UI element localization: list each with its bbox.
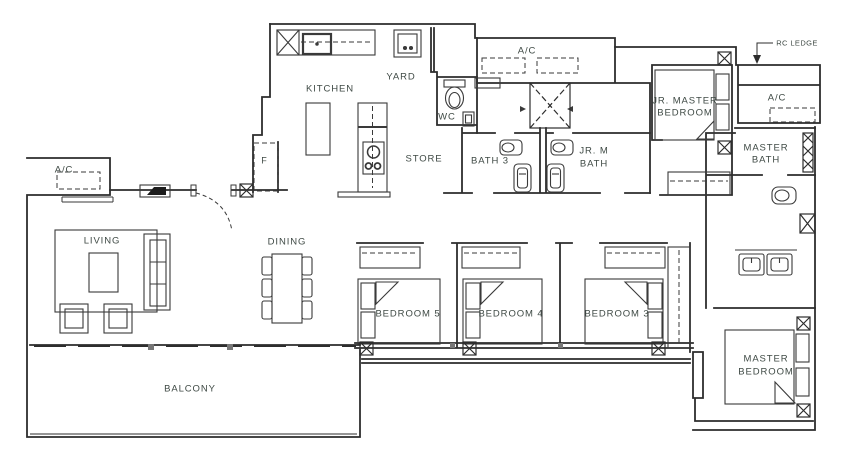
room-label-bedroom5: BEDROOM 5 (375, 309, 440, 320)
beds (358, 70, 809, 404)
room-label-yard: YARD (386, 72, 415, 83)
master-toilet (772, 187, 796, 204)
fridge (254, 143, 278, 191)
room-label-balcony: BALCONY (164, 384, 216, 395)
floor-plan: KITCHEN YARD WC STORE BATH 3 JR. M BATH … (0, 0, 841, 475)
room-label-store: STORE (405, 154, 442, 165)
entrance-door (140, 185, 236, 231)
wardrobe-bedroom5 (360, 247, 420, 268)
room-label-jr-master-line2: BEDROOM (657, 108, 712, 119)
room-label-wc: WC (438, 112, 456, 123)
bath3-fixtures (500, 106, 531, 192)
shaft-main (530, 83, 570, 128)
dashed-elements (57, 42, 815, 345)
ac-label-top: A/C (518, 46, 537, 57)
room-label-jr-m-bath-line2: BATH (580, 159, 608, 170)
kitchen-fittings (277, 30, 500, 197)
wardrobe-rods (362, 181, 728, 345)
floorplan-drawing (0, 0, 841, 475)
rc-ledge-label: RC LEDGE (776, 38, 818, 49)
room-label-living: LIVING (84, 236, 121, 247)
room-label-master-bedroom-line1: MASTER (744, 354, 789, 365)
room-label-master-bath-line2: BATH (752, 155, 780, 166)
wc-basin (463, 112, 474, 126)
ac-label-right: A/C (768, 93, 787, 104)
room-label-bedroom4: BEDROOM 4 (478, 309, 543, 320)
jr-m-bath-toilet (551, 140, 573, 155)
ac-label-left: A/C (55, 165, 74, 176)
dining-table (272, 254, 302, 323)
rc-ledge-arrow (753, 43, 773, 64)
bath3-toilet (500, 140, 522, 155)
wardrobe-bedroom4 (462, 247, 520, 268)
room-label-master-bath-line1: MASTER (744, 143, 789, 154)
armchair-2 (104, 304, 132, 333)
dining-furniture (262, 254, 312, 323)
room-label-jr-m-bath-line1: JR. M (579, 146, 608, 157)
wardrobes (360, 172, 730, 348)
kitchen-island (306, 103, 330, 155)
room-label-master-bedroom-line2: BEDROOM (738, 367, 793, 378)
door-swing-arc (196, 193, 232, 231)
wc-toilet (446, 87, 464, 109)
room-label-dining: DINING (268, 237, 307, 248)
room-label-kitchen: KITCHEN (306, 84, 354, 95)
wc-cistern (444, 80, 465, 87)
jr-m-bath-fixtures (547, 106, 573, 192)
room-label-bath3: BATH 3 (471, 156, 509, 167)
ac-unit-right (770, 108, 815, 122)
coffee-table (89, 253, 118, 292)
ac-unit-top-2 (537, 58, 578, 73)
ac-unit-top-1 (482, 58, 525, 73)
master-bath-fixtures (735, 187, 797, 275)
window-hatch-strip (803, 133, 813, 172)
armchair-1 (60, 304, 88, 333)
room-label-jr-master-line1: JR. MASTER (652, 96, 717, 107)
entry-shelf (62, 197, 113, 202)
shower-shaft (800, 214, 815, 233)
fridge-label: F (261, 156, 267, 167)
room-label-bedroom3: BEDROOM 3 (584, 309, 649, 320)
wardrobe-bedroom3 (605, 247, 665, 268)
